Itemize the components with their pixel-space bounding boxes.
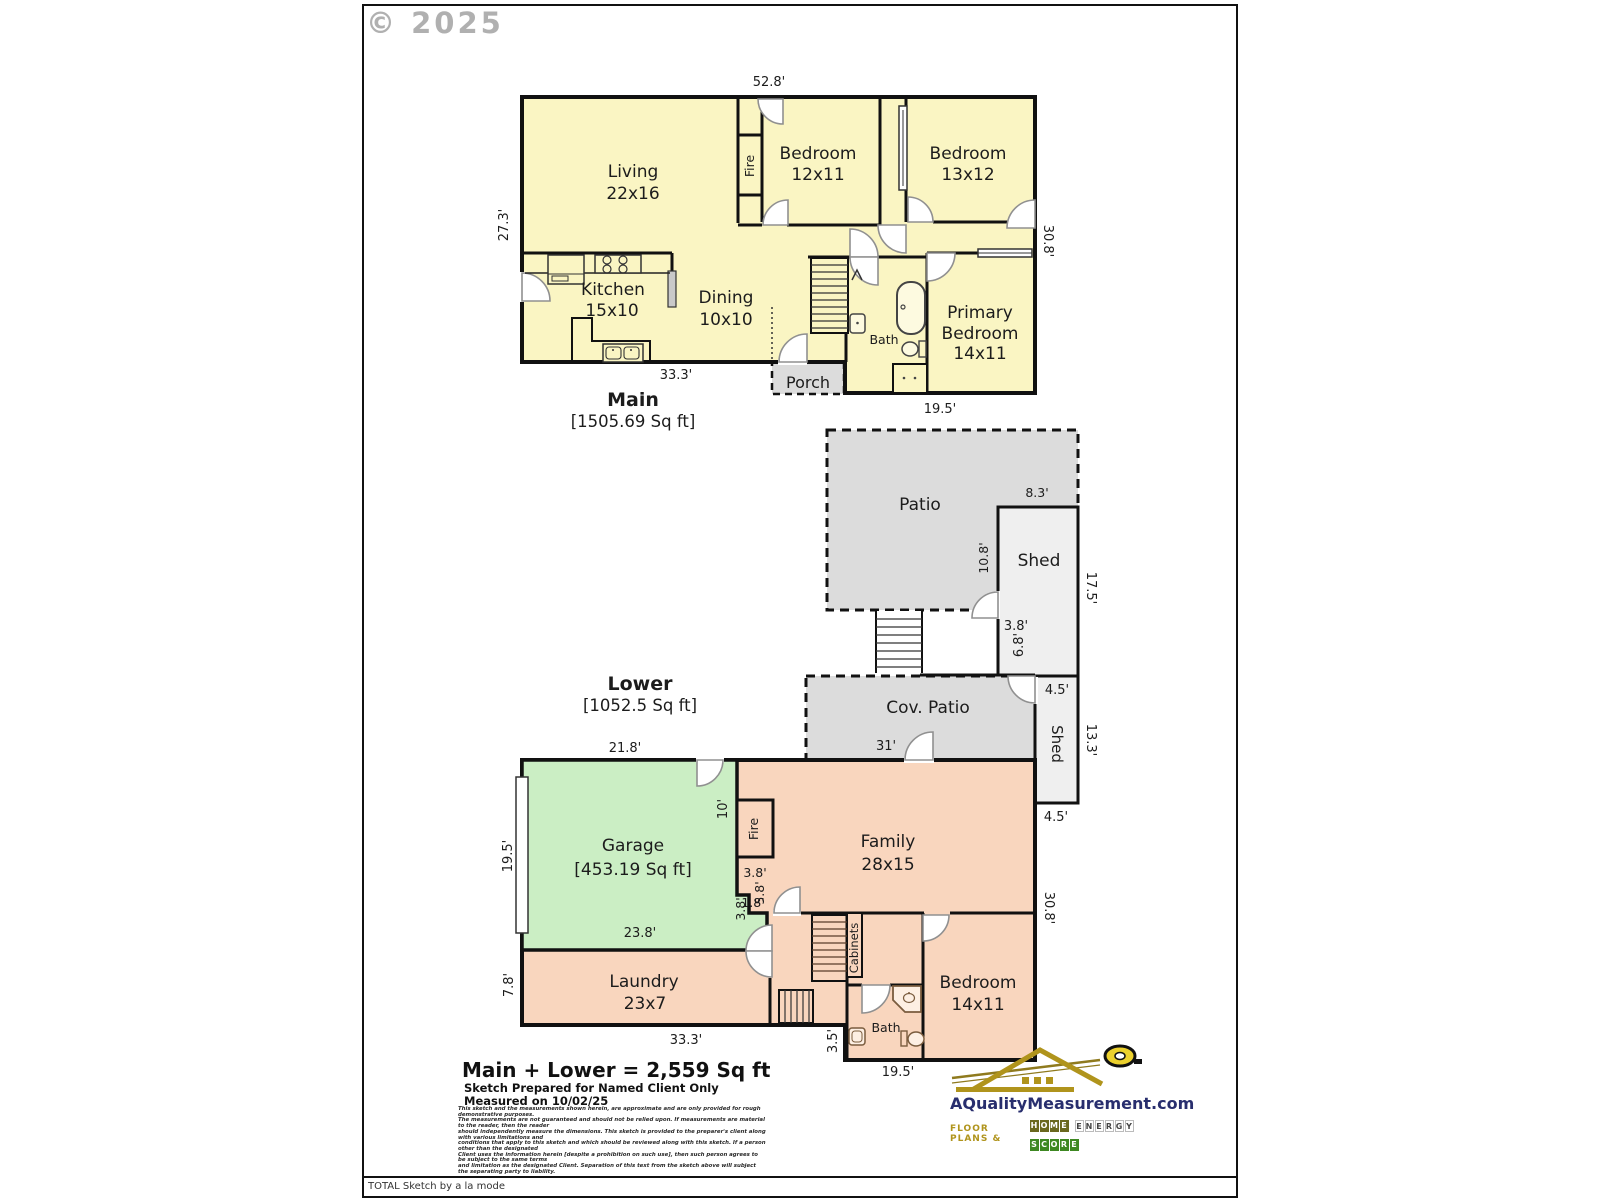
- logo-tagline-prefix: Floor Plans &: [950, 1124, 1025, 1144]
- main-floor: Living 22x16 Fire Bedroom 12x11 Bedroom …: [497, 75, 1055, 431]
- dim-stairs-width: 3.8': [1004, 619, 1028, 634]
- patio-label: Patio: [899, 495, 941, 515]
- main-dim-left: 27.3': [497, 209, 512, 242]
- room-laundry: Laundry: [609, 972, 678, 992]
- toilet-icon: [902, 342, 918, 356]
- room-lower-bedroom-size: 14x11: [951, 995, 1004, 1015]
- room-bedroom2: Bedroom: [930, 144, 1007, 164]
- lower-dim-jog-d: 3.8': [733, 897, 748, 920]
- main-dim-top: 52.8': [753, 75, 786, 90]
- lower-dim-garage-left: 19.5': [501, 840, 516, 873]
- room-lower-bath: Bath: [871, 1020, 900, 1035]
- room-porch: Porch: [786, 373, 830, 392]
- room-kitchen: Kitchen: [581, 280, 645, 300]
- outdoor-stairs: [876, 611, 922, 673]
- garage-door-icon: [516, 777, 528, 933]
- disclaimer-line: conditions that apply to this sketch and…: [458, 1141, 766, 1152]
- dim-stairs-height: 6.8': [1012, 633, 1027, 657]
- main-dim-right: 30.8': [1040, 225, 1055, 258]
- room-family-size: 28x15: [861, 855, 914, 875]
- shed2-label: Shed: [1048, 725, 1066, 763]
- room-primary-line1: Primary: [947, 303, 1013, 323]
- lower-dim-jog-a: 3.8': [743, 865, 766, 880]
- disclaimer: This sketch and the measurements shown h…: [458, 1107, 766, 1175]
- dim-patio-shed-side: 10.8': [976, 542, 991, 573]
- room-kitchen-size: 15x10: [585, 301, 638, 321]
- room-dining-size: 10x10: [699, 310, 752, 330]
- shed1-area: [998, 507, 1078, 677]
- room-primary-line2: Bedroom: [942, 324, 1019, 344]
- shed1-label: Shed: [1018, 551, 1061, 571]
- vanity-icon: [893, 364, 927, 393]
- logo-house-icon: [950, 1042, 1150, 1092]
- lower-dim-bottom-left: 33.3': [670, 1033, 703, 1048]
- room-laundry-size: 23x7: [624, 994, 667, 1014]
- room-garage: Garage: [602, 836, 664, 856]
- dim-shed2-height: 13.3': [1083, 724, 1098, 757]
- lower-dim-top: 21.8': [609, 741, 642, 756]
- lower-dim-laundry-left: 7.8': [502, 973, 517, 997]
- stove-icon: [595, 255, 641, 273]
- lower-floor-sqft: [1052.5 Sq ft]: [583, 696, 697, 715]
- room-bedroom1-size: 12x11: [791, 165, 844, 185]
- dim-shed2-bottom: 4.5': [1044, 810, 1068, 825]
- room-garage-sqft: [453.19 Sq ft]: [574, 860, 692, 880]
- logo-tagline: Floor Plans & HOMEENERGYSCORE: [950, 1115, 1160, 1153]
- cabinets-label: Cabinets: [847, 923, 861, 973]
- fireplace-label: Fire: [742, 155, 757, 178]
- footer-divider: [362, 1176, 1236, 1178]
- lower-dim-bath-left: 3.5': [826, 1029, 841, 1053]
- lower-floor-title: Lower: [608, 673, 674, 695]
- room-bedroom1: Bedroom: [780, 144, 857, 164]
- software-credit: TOTAL Sketch by a la mode: [368, 1181, 505, 1192]
- room-bath: Bath: [869, 332, 898, 347]
- main-floor-sqft: [1505.69 Sq ft]: [571, 412, 696, 431]
- dim-shed1-width: 8.3': [1025, 485, 1048, 500]
- room-primary-size: 14x11: [953, 344, 1006, 364]
- main-floor-title: Main: [607, 389, 659, 411]
- dim-shed1-height: 17.5': [1083, 572, 1098, 605]
- room-lower-bedroom: Bedroom: [940, 973, 1017, 993]
- company-logo: AQualityMeasurement.com Floor Plans & HO…: [950, 1042, 1160, 1153]
- main-dim-bottom-left: 33.3': [660, 368, 693, 383]
- lower-dim-garage-hall: 10': [716, 799, 731, 819]
- room-dining: Dining: [699, 288, 754, 308]
- total-sqft: Main + Lower = 2,559 Sq ft: [462, 1058, 770, 1082]
- cov-patio-label: Cov. Patio: [886, 698, 970, 718]
- room-family: Family: [861, 832, 916, 852]
- floorplan-drawing: Living 22x16 Fire Bedroom 12x11 Bedroom …: [0, 0, 1600, 1200]
- logo-tagline-boxes: HOMEENERGYSCORE: [1030, 1115, 1160, 1153]
- room-living: Living: [608, 162, 659, 182]
- toilet-icon: [908, 1032, 924, 1046]
- logo-domain-text: AQualityMeasurement.com: [950, 1094, 1160, 1113]
- lower-dim-garage-bottom: 23.8': [624, 926, 657, 941]
- lower-dim-bottom-right: 19.5': [882, 1065, 915, 1080]
- prepared-for: Sketch Prepared for Named Client Only: [464, 1081, 719, 1095]
- lower-fireplace-label: Fire: [746, 818, 761, 841]
- dim-shed2-top: 4.5': [1045, 683, 1069, 698]
- lower-dim-right: 30.8': [1041, 892, 1056, 925]
- room-living-size: 22x16: [606, 184, 659, 204]
- room-bedroom2-size: 13x12: [941, 165, 994, 185]
- refrigerator-icon: [548, 255, 584, 284]
- dim-cov-patio-width: 31': [876, 739, 896, 754]
- floorplan-page: © 2025: [0, 0, 1600, 1200]
- main-dim-bottom-right: 19.5': [924, 402, 957, 417]
- disclaimer-line: and limitation as the designated Client.…: [458, 1164, 766, 1175]
